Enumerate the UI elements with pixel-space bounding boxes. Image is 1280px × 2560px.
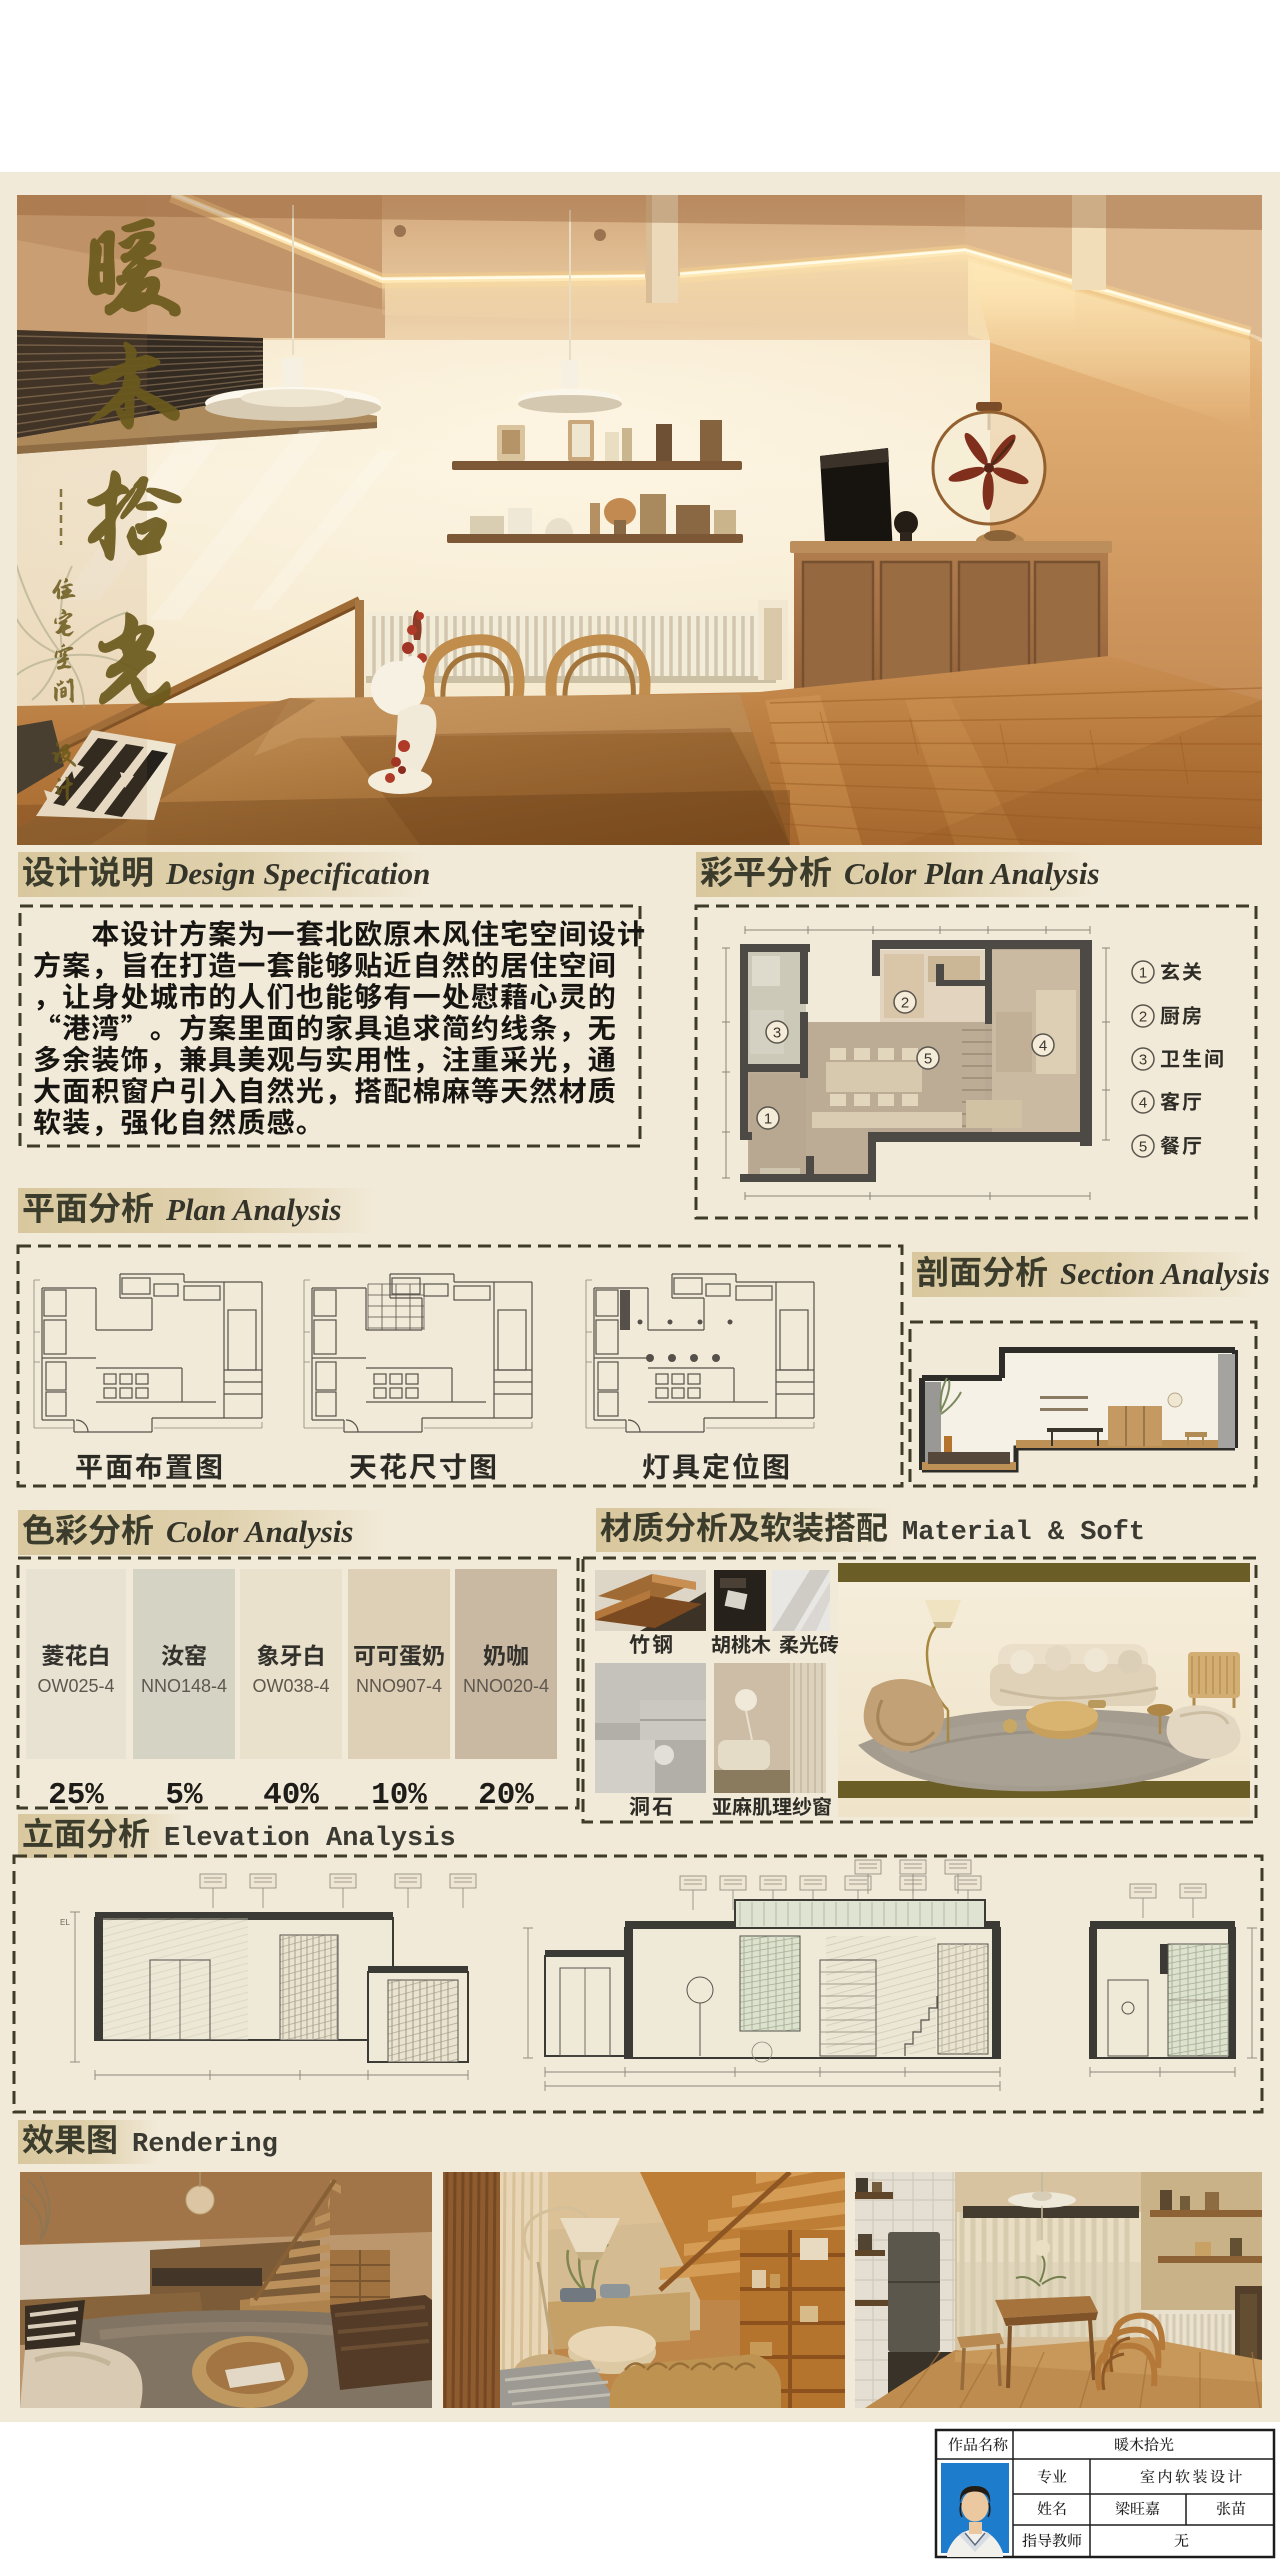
svg-text:Plan Analysis: Plan Analysis: [165, 1192, 341, 1227]
svg-text:1: 1: [764, 1110, 772, 1127]
svg-text:10%: 10%: [371, 1778, 427, 1813]
svg-text:40%: 40%: [263, 1778, 319, 1813]
svg-text:25%: 25%: [48, 1778, 104, 1813]
svg-text:NNO020-4: NNO020-4: [463, 1676, 549, 1696]
svg-text:Section Analysis: Section Analysis: [1060, 1256, 1270, 1291]
svg-text:EL: EL: [60, 1918, 70, 1927]
svg-text:NNO148-4: NNO148-4: [141, 1676, 227, 1696]
svg-text:5: 5: [924, 1050, 932, 1067]
svg-text:Rendering: Rendering: [132, 2130, 278, 2160]
svg-text:OW025-4: OW025-4: [37, 1676, 114, 1696]
svg-text:Material & Soft: Material & Soft: [902, 1518, 1145, 1548]
svg-text:20%: 20%: [478, 1778, 534, 1813]
svg-text:OW038-4: OW038-4: [252, 1676, 329, 1696]
svg-text:3: 3: [773, 1024, 781, 1041]
svg-text:3: 3: [1139, 1051, 1147, 1068]
svg-text:4: 4: [1039, 1037, 1047, 1054]
svg-text:5: 5: [1139, 1138, 1147, 1155]
svg-text:1: 1: [1139, 964, 1147, 981]
svg-text:2: 2: [1139, 1008, 1147, 1025]
svg-text:4: 4: [1139, 1094, 1147, 1111]
svg-text:2: 2: [901, 994, 909, 1011]
svg-text:Elevation Analysis: Elevation Analysis: [164, 1824, 456, 1854]
svg-text:Color Plan Analysis: Color Plan Analysis: [844, 856, 1100, 891]
svg-text:Design Specification: Design Specification: [165, 856, 430, 891]
svg-text:5%: 5%: [165, 1778, 203, 1813]
svg-text:NNO907-4: NNO907-4: [356, 1676, 442, 1696]
svg-text:Color Analysis: Color Analysis: [166, 1514, 353, 1549]
